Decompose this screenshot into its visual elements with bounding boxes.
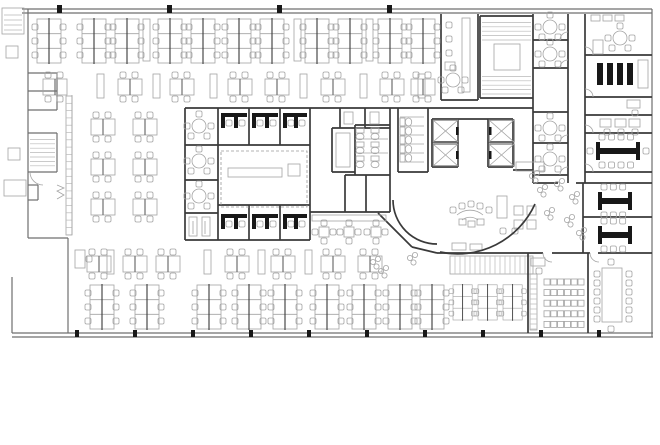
desk-cluster: [333, 18, 367, 64]
desk-cluster: [192, 284, 226, 330]
chair: [468, 201, 474, 207]
toilet-icon: [371, 128, 379, 140]
hatch-area: [482, 22, 531, 40]
plant-icon: [370, 256, 380, 269]
hatch-layer: [4, 15, 537, 330]
elevator-icon: [489, 120, 514, 142]
chair: [608, 326, 614, 332]
plant-icon: [576, 227, 586, 240]
desk-cluster-small: [87, 249, 111, 279]
desk-cluster: [110, 18, 144, 64]
curved-wall: [393, 200, 437, 244]
door-swing: [585, 89, 593, 97]
round-meeting-table: [184, 146, 214, 174]
chair: [446, 50, 452, 56]
elevator-icon: [433, 120, 459, 142]
desk-cluster: [255, 18, 289, 64]
chair: [608, 259, 614, 265]
conference-table: [598, 218, 632, 252]
desk-cluster: [449, 284, 476, 321]
office-desk: [221, 214, 234, 229]
desk-cluster: [222, 18, 256, 64]
desk-cluster: [85, 284, 119, 330]
desk-cluster-small: [91, 152, 115, 182]
training-tables: [544, 279, 584, 327]
round-meeting-table: [605, 23, 635, 51]
desk-cluster: [268, 284, 302, 330]
plant-icon: [564, 214, 574, 227]
hatch-area: [530, 274, 537, 330]
round-meeting-table: [184, 181, 214, 209]
desk-cluster: [406, 18, 440, 64]
office-desk: [252, 113, 265, 128]
hatch-area: [66, 96, 72, 235]
desk-cluster: [415, 284, 449, 330]
door-swing: [585, 47, 593, 55]
chair: [626, 289, 632, 295]
office-desk: [234, 113, 247, 128]
chair: [594, 289, 600, 295]
chair: [626, 280, 632, 286]
desk-cluster-small: [225, 249, 249, 279]
desk-cluster: [300, 18, 334, 64]
chair: [626, 316, 632, 322]
desk-cluster-small: [321, 249, 345, 279]
plant-icon: [554, 178, 564, 191]
floor-plan: Office floor plan drawing: [0, 0, 660, 445]
round-meeting-table: [438, 65, 468, 93]
desk-cluster: [499, 284, 526, 321]
office-desk: [252, 214, 265, 229]
desk-cluster-small: [321, 72, 345, 102]
office-desk: [234, 214, 247, 229]
door-swing: [57, 185, 64, 199]
chair: [594, 316, 600, 322]
desk-cluster-small: [228, 72, 252, 102]
toilet-icon: [400, 154, 412, 162]
round-meeting-table: [535, 12, 565, 40]
door-swing: [560, 60, 568, 68]
door-swing: [457, 210, 483, 215]
desk-cluster: [232, 284, 266, 330]
door-swing: [462, 217, 478, 220]
desk-cluster: [383, 284, 417, 330]
chair: [536, 268, 542, 274]
round-meeting-table: [184, 111, 214, 139]
chair: [500, 228, 506, 234]
conference-table: [598, 184, 632, 218]
desk-cluster: [153, 18, 187, 64]
desk-cluster-small: [271, 249, 295, 279]
plant-icon: [529, 170, 539, 183]
elevator-icon: [489, 144, 514, 166]
round-meeting-table: [535, 113, 565, 141]
hatch-area: [30, 139, 55, 165]
desk-cluster-small: [43, 72, 67, 102]
chair: [446, 22, 452, 28]
desk-cluster-small: [156, 249, 180, 279]
desk-cluster-small: [133, 152, 157, 182]
plant-icon: [569, 191, 579, 204]
toilet-icon: [371, 156, 379, 168]
chair: [446, 36, 452, 42]
chair: [626, 271, 632, 277]
office-desk: [294, 113, 307, 128]
chair: [594, 298, 600, 304]
door-swing: [590, 253, 599, 262]
desk-cluster-small: [411, 72, 435, 102]
desk-cluster: [373, 18, 407, 64]
plant-icon: [544, 207, 554, 220]
cafe-table: [364, 220, 388, 244]
chair: [477, 203, 483, 209]
desk-cluster-small: [133, 112, 157, 142]
chair: [626, 298, 632, 304]
desk-cluster-small: [91, 192, 115, 222]
round-meeting-table: [535, 144, 565, 172]
desk-cluster-small: [123, 249, 147, 279]
chair: [486, 207, 492, 213]
office-desk: [294, 214, 307, 229]
door-swing: [30, 172, 43, 185]
office-desk: [265, 214, 278, 229]
desk-cluster-small: [380, 72, 404, 102]
fixtures-layer: [2, 5, 648, 337]
desk-cluster: [130, 284, 164, 330]
desk-cluster: [186, 18, 220, 64]
hatch-area: [482, 76, 531, 94]
toilet-icon: [400, 145, 412, 153]
hatch-area: [4, 15, 22, 30]
floor-plan-canvas: Office floor plan drawing: [0, 0, 660, 445]
round-meeting-table: [535, 39, 565, 67]
office-desk: [221, 113, 234, 128]
desk-cluster: [474, 284, 501, 321]
chair: [450, 207, 456, 213]
desk-cluster-small: [265, 72, 289, 102]
chair: [594, 271, 600, 277]
door-swing: [543, 253, 552, 262]
desk-cluster-small: [133, 192, 157, 222]
chair: [594, 307, 600, 313]
chair: [626, 307, 632, 313]
toilet-icon: [356, 142, 364, 154]
desk-cluster: [32, 18, 66, 64]
desk-cluster-small: [91, 112, 115, 142]
chair: [459, 203, 465, 209]
desk-cluster: [347, 284, 381, 330]
elevator-icon: [433, 144, 459, 166]
toilet-icon: [400, 118, 412, 126]
conference-table-large: [587, 134, 649, 168]
cafe-table: [312, 220, 336, 244]
office-desk: [265, 113, 278, 128]
plant-icon: [537, 184, 547, 197]
desk-cluster: [310, 284, 344, 330]
toilet-icon: [400, 127, 412, 135]
toilet-icon: [356, 128, 364, 140]
hatch-area: [450, 256, 533, 274]
desk-cluster-small: [358, 249, 382, 279]
plant-icon: [407, 252, 417, 265]
toilet-icon: [371, 142, 379, 154]
door-swing: [585, 164, 593, 172]
cafe-table: [337, 220, 361, 244]
desk-cluster-small: [118, 72, 142, 102]
toilet-icon: [400, 136, 412, 144]
desk-cluster: [77, 18, 111, 64]
door-swing: [585, 125, 593, 133]
toilet-icon: [356, 156, 364, 168]
chair: [594, 280, 600, 286]
desk-cluster-small: [170, 72, 194, 102]
